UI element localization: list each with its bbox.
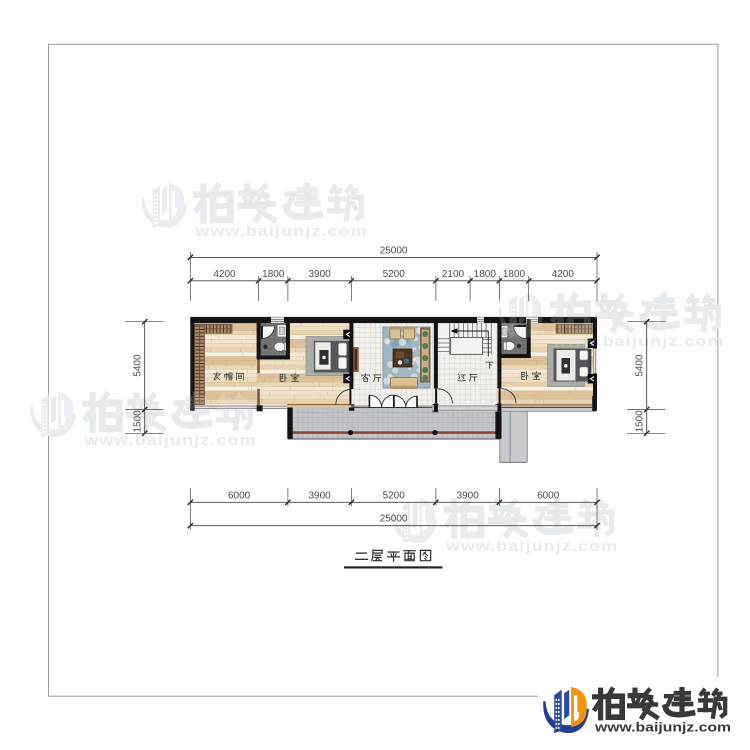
svg-text:1800: 1800 bbox=[262, 269, 285, 280]
svg-text:1800: 1800 bbox=[503, 269, 526, 280]
svg-text:1500: 1500 bbox=[133, 410, 144, 433]
svg-text:www.baijunjz.com: www.baijunjz.com bbox=[594, 720, 731, 735]
svg-text:5200: 5200 bbox=[383, 269, 406, 280]
svg-text:5400: 5400 bbox=[635, 354, 646, 377]
svg-text:3900: 3900 bbox=[308, 490, 331, 501]
svg-text:www.baijunjz.com: www.baijunjz.com bbox=[194, 224, 367, 240]
svg-text:2100: 2100 bbox=[442, 269, 465, 280]
svg-text:1800: 1800 bbox=[474, 269, 497, 280]
svg-text:25000: 25000 bbox=[380, 514, 408, 525]
svg-text:4200: 4200 bbox=[552, 269, 575, 280]
svg-text:6000: 6000 bbox=[228, 490, 251, 501]
svg-text:5400: 5400 bbox=[133, 354, 144, 377]
svg-text:1500: 1500 bbox=[635, 410, 646, 433]
svg-text:www.baijunjz.com: www.baijunjz.com bbox=[83, 433, 256, 449]
svg-text:3900: 3900 bbox=[308, 269, 331, 280]
svg-text:6000: 6000 bbox=[537, 490, 560, 501]
svg-text:www.baijunjz.com: www.baijunjz.com bbox=[551, 334, 724, 350]
svg-text:4200: 4200 bbox=[213, 269, 236, 280]
svg-text:5200: 5200 bbox=[383, 490, 406, 501]
svg-text:www.baijunjz.com: www.baijunjz.com bbox=[445, 539, 618, 555]
svg-text:3900: 3900 bbox=[457, 490, 480, 501]
svg-text:25000: 25000 bbox=[380, 245, 408, 256]
